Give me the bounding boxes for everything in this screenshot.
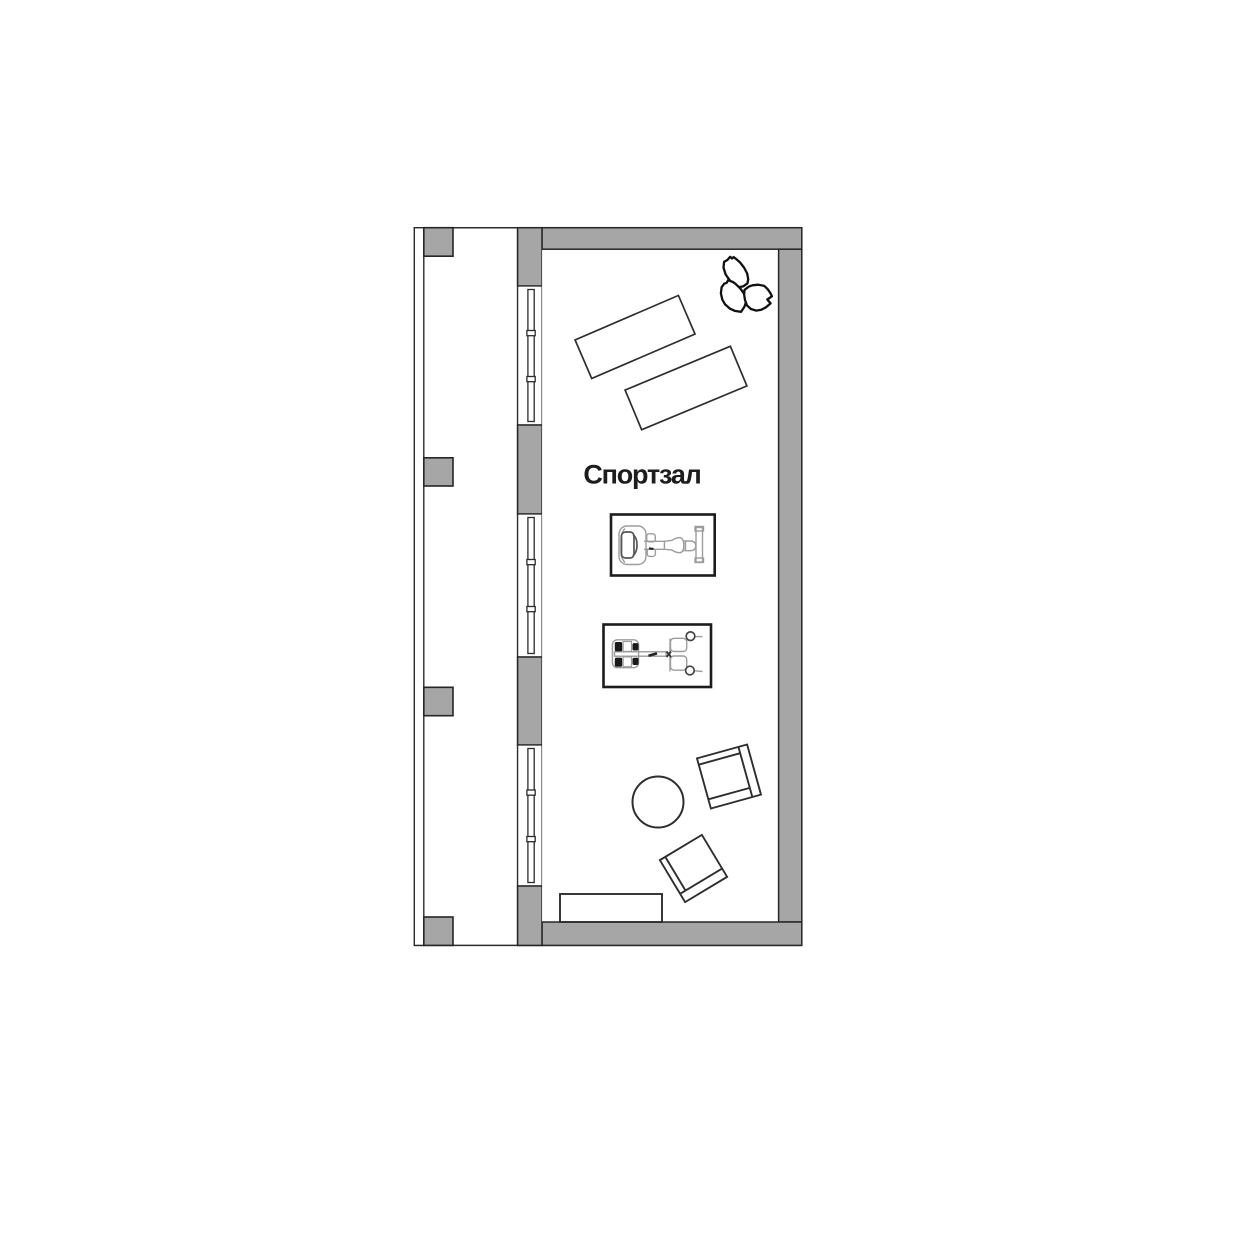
svg-text:Спортзал: Спортзал (583, 460, 700, 490)
